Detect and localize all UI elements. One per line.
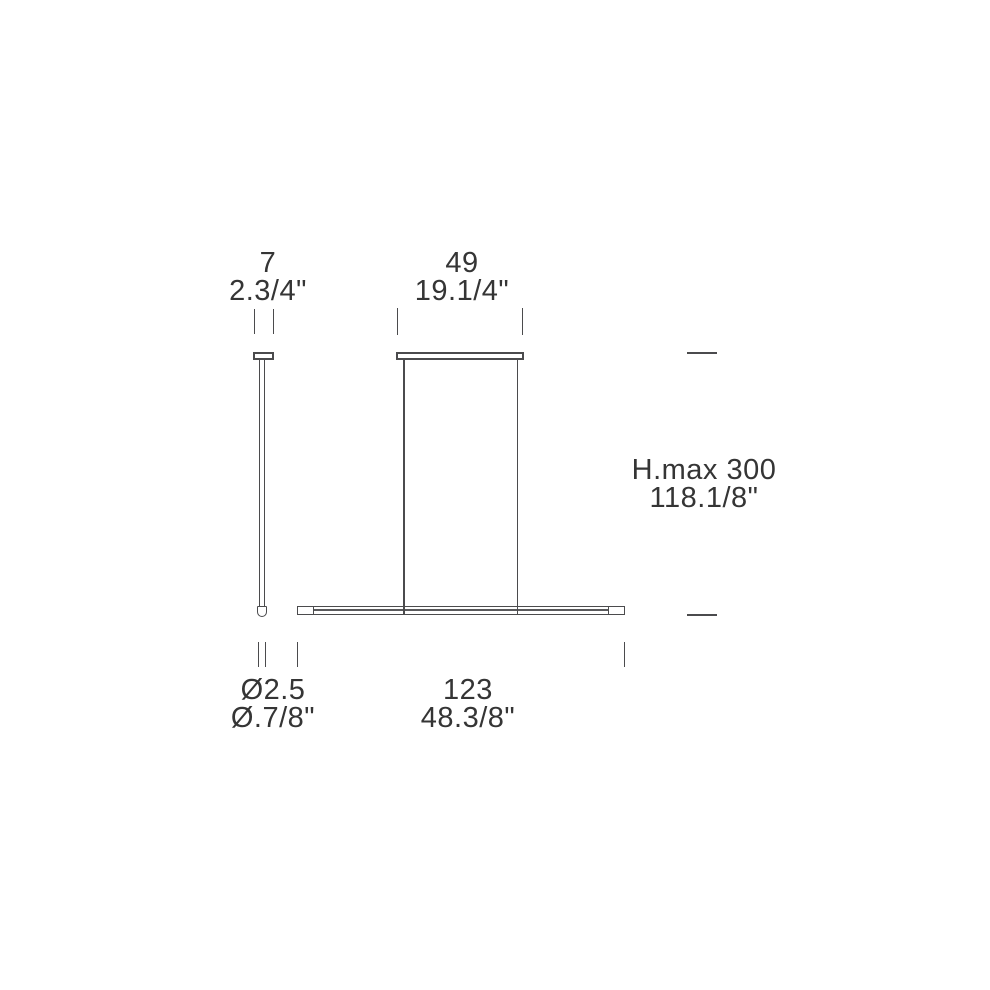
front-view-canopy [396, 352, 524, 360]
light-bar-endcap-left [297, 606, 314, 615]
suspension-cable-left [403, 360, 405, 614]
extension-line-stem-dia-left [258, 642, 259, 667]
imperial-value: 48.3/8" [358, 704, 578, 732]
bar-length-label: 123 48.3/8" [358, 676, 578, 732]
metric-value: 49 [352, 249, 572, 277]
side-view-stem [259, 360, 265, 607]
extension-line-bar-left [297, 642, 298, 667]
max-height-label: H.max 300 118.1/8" [594, 456, 814, 512]
canopy-side-width-label: 7 2.3/4" [158, 249, 378, 305]
extension-line-canopy-side-right [273, 309, 274, 334]
side-view-canopy-cap [253, 352, 274, 360]
dimension-drawing: 7 2.3/4" 49 19.1/4" H.max 300 118.1/8" Ø… [0, 0, 990, 990]
metric-value: 7 [158, 249, 378, 277]
side-view-stem-tip [257, 606, 267, 617]
height-reference-tick-top [687, 352, 717, 354]
canopy-front-width-label: 49 19.1/4" [352, 249, 572, 305]
stem-diameter-label: Ø2.5 Ø.7/8" [163, 676, 383, 732]
imperial-value: 19.1/4" [352, 277, 572, 305]
extension-line-canopy-front-left [397, 308, 398, 335]
light-bar-inner-edge [314, 609, 608, 611]
metric-value: H.max 300 [594, 456, 814, 484]
light-bar-endcap-right [608, 606, 625, 615]
imperial-value: 118.1/8" [594, 484, 814, 512]
extension-line-canopy-front-right [522, 308, 523, 335]
imperial-value: 2.3/4" [158, 277, 378, 305]
extension-line-canopy-side-left [254, 309, 255, 334]
metric-value: 123 [358, 676, 578, 704]
imperial-value: Ø.7/8" [163, 704, 383, 732]
metric-value: Ø2.5 [163, 676, 383, 704]
extension-line-bar-right [624, 642, 625, 667]
height-reference-tick-bottom [687, 614, 717, 616]
suspension-cable-right [517, 360, 519, 614]
extension-line-stem-dia-right [265, 642, 266, 667]
